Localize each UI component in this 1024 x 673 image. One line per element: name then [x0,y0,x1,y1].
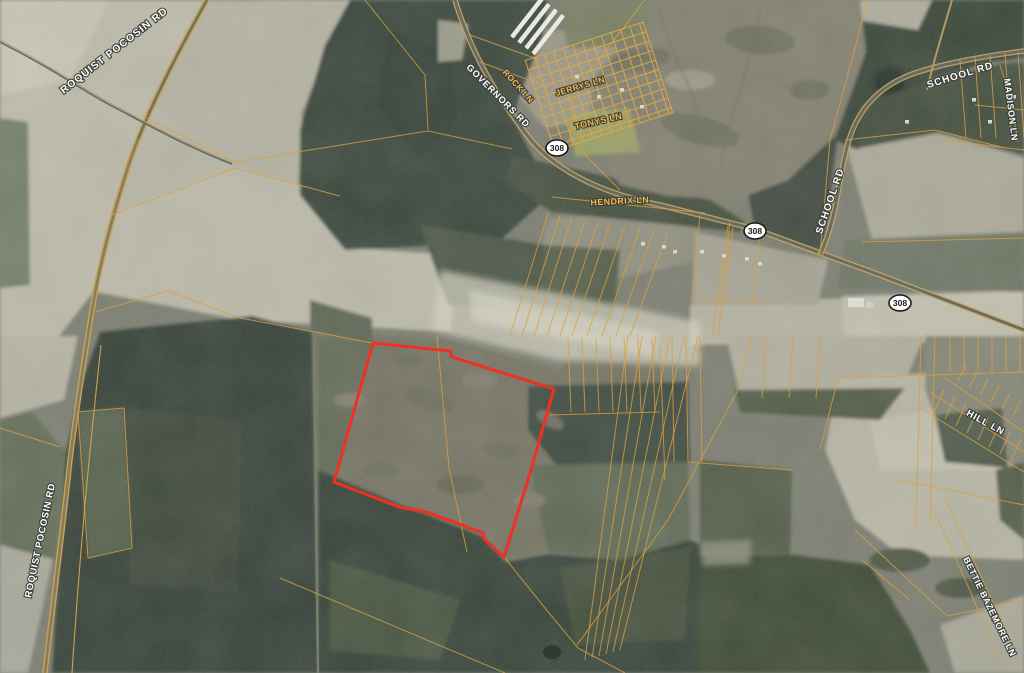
svg-text:308: 308 [893,298,907,308]
svg-text:308: 308 [550,143,564,153]
svg-text:308: 308 [748,226,762,236]
